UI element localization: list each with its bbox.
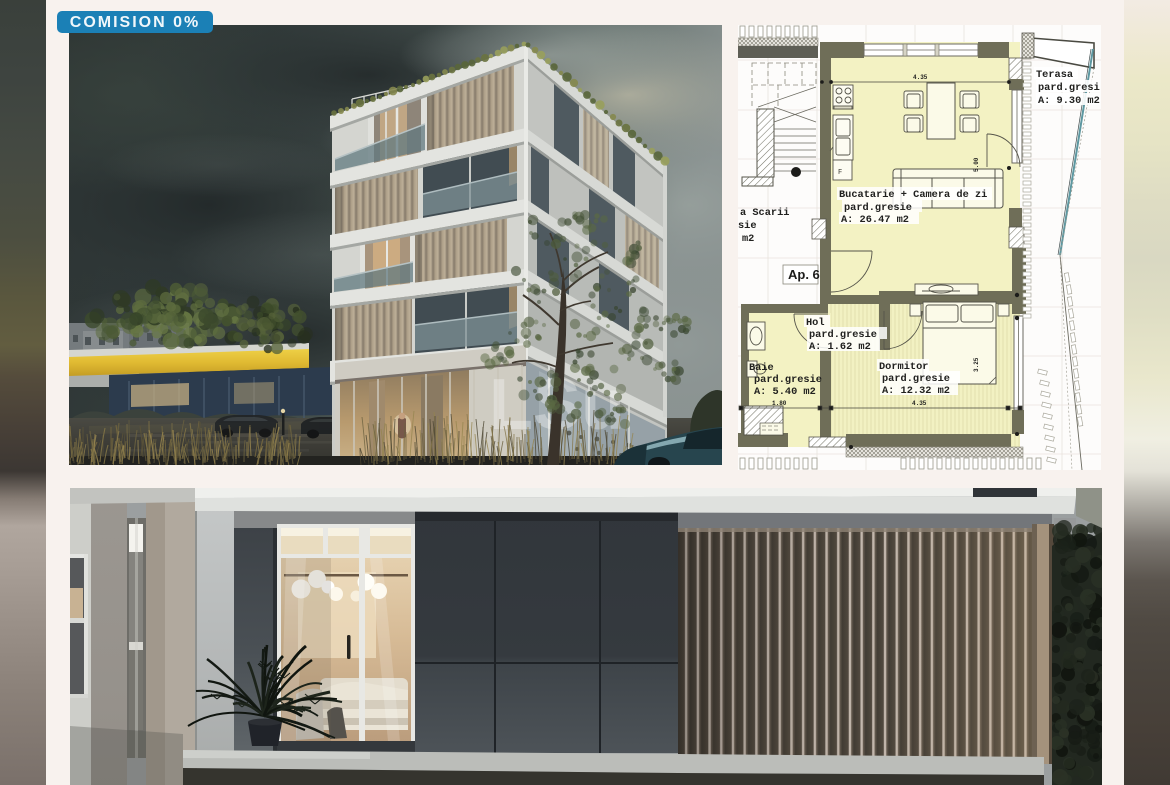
svg-text:m2: m2 [742,233,754,245]
svg-text:sie: sie [738,220,757,232]
svg-text:pard.gresie: pard.gresie [882,373,950,385]
svg-text:Terasa: Terasa [1036,69,1073,81]
svg-text:A: 12.32 m2: A: 12.32 m2 [882,385,950,397]
svg-text:pard.gresie: pard.gresie [809,329,877,341]
svg-text:Baie: Baie [749,362,774,374]
svg-text:pard.gresi: pard.gresi [1038,82,1100,94]
svg-text:5.00: 5.00 [973,157,980,172]
svg-text:Bucatarie + Camera de zi: Bucatarie + Camera de zi [839,189,987,201]
svg-text:1.80: 1.80 [772,400,787,407]
svg-text:Hol: Hol [806,317,825,329]
svg-text:pard.gresie: pard.gresie [844,202,912,214]
svg-text:F: F [838,169,842,177]
svg-text:3.25: 3.25 [973,357,980,372]
svg-text:A: 9.30 m2: A: 9.30 m2 [1038,95,1100,107]
svg-text:A: 26.47 m2: A: 26.47 m2 [841,214,909,226]
svg-text:Ap. 6: Ap. 6 [788,267,820,282]
svg-text:pard.gresie: pard.gresie [754,374,822,386]
svg-text:4.35: 4.35 [913,74,928,81]
svg-text:Dormitor: Dormitor [879,361,928,373]
svg-text:A: 1.62 m2: A: 1.62 m2 [809,341,871,353]
svg-text:A: 5.40 m2: A: 5.40 m2 [754,386,816,398]
svg-text:a Scarii: a Scarii [740,207,789,219]
svg-text:4.35: 4.35 [912,400,927,407]
